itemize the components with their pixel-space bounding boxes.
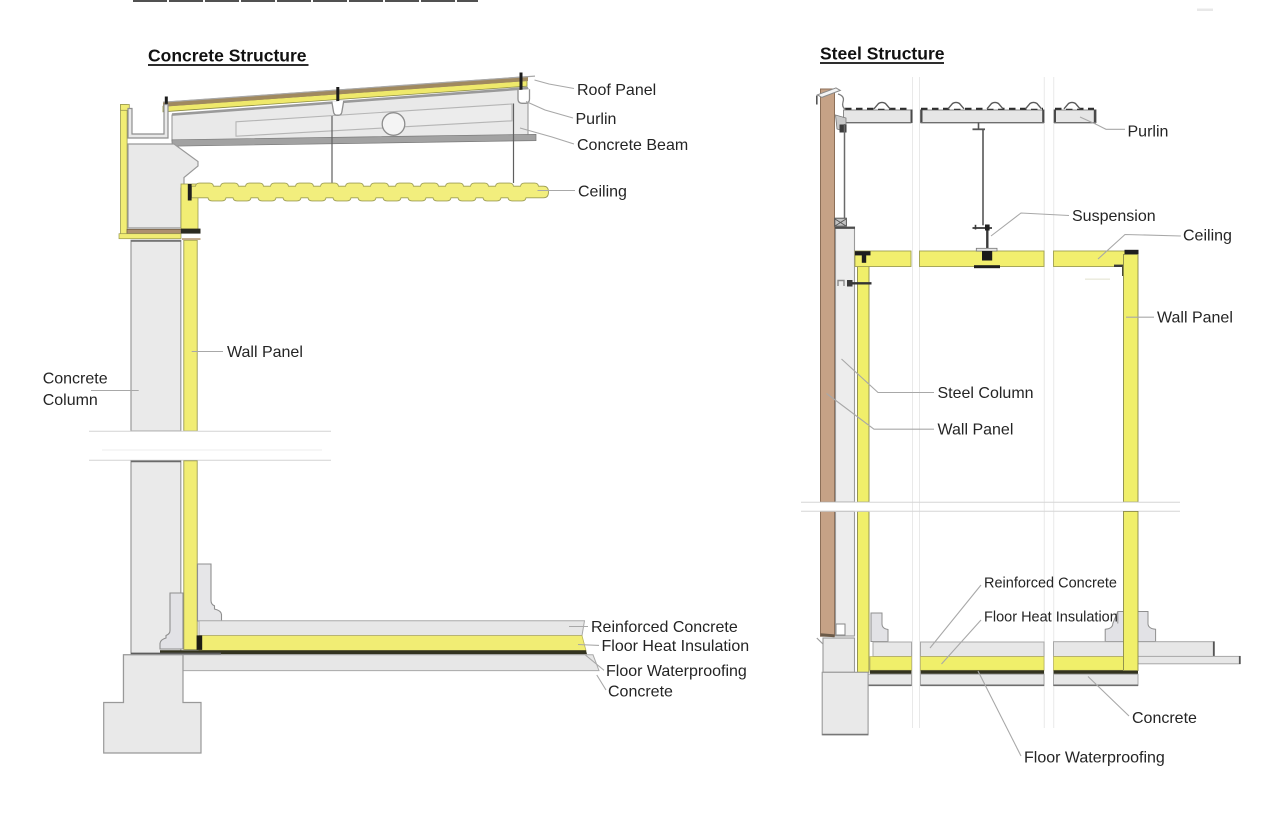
svg-text:Reinforced Concrete: Reinforced Concrete [984,576,1117,592]
svg-text:Concrete: Concrete [43,370,108,387]
svg-text:Wall Panel: Wall Panel [938,422,1014,439]
svg-text:Steel Structure: Steel Structure [820,44,945,64]
svg-text:Floor Waterproofing: Floor Waterproofing [606,663,747,680]
svg-text:Ceiling: Ceiling [1183,228,1232,245]
svg-text:Reinforced Concrete: Reinforced Concrete [591,619,738,636]
svg-text:Column: Column [43,392,98,409]
svg-text:Wall Panel: Wall Panel [227,344,303,361]
svg-text:Concrete: Concrete [608,683,673,700]
svg-text:Concrete Beam: Concrete Beam [577,137,688,154]
svg-text:Wall Panel: Wall Panel [1157,310,1233,327]
svg-text:Purlin: Purlin [576,111,617,128]
svg-text:Floor Heat Insulation: Floor Heat Insulation [602,638,750,655]
svg-text:Floor Waterproofing: Floor Waterproofing [1024,749,1165,766]
svg-text:Steel Column: Steel Column [938,385,1034,402]
svg-text:Suspension: Suspension [1072,208,1156,225]
svg-text:Concrete Structure: Concrete Structure [148,46,307,66]
svg-text:Purlin: Purlin [1128,124,1169,141]
svg-text:Ceiling: Ceiling [578,184,627,201]
svg-text:Concrete: Concrete [1132,710,1197,727]
svg-text:Roof Panel: Roof Panel [577,82,656,99]
svg-text:Floor Heat Insulation: Floor Heat Insulation [984,610,1118,626]
